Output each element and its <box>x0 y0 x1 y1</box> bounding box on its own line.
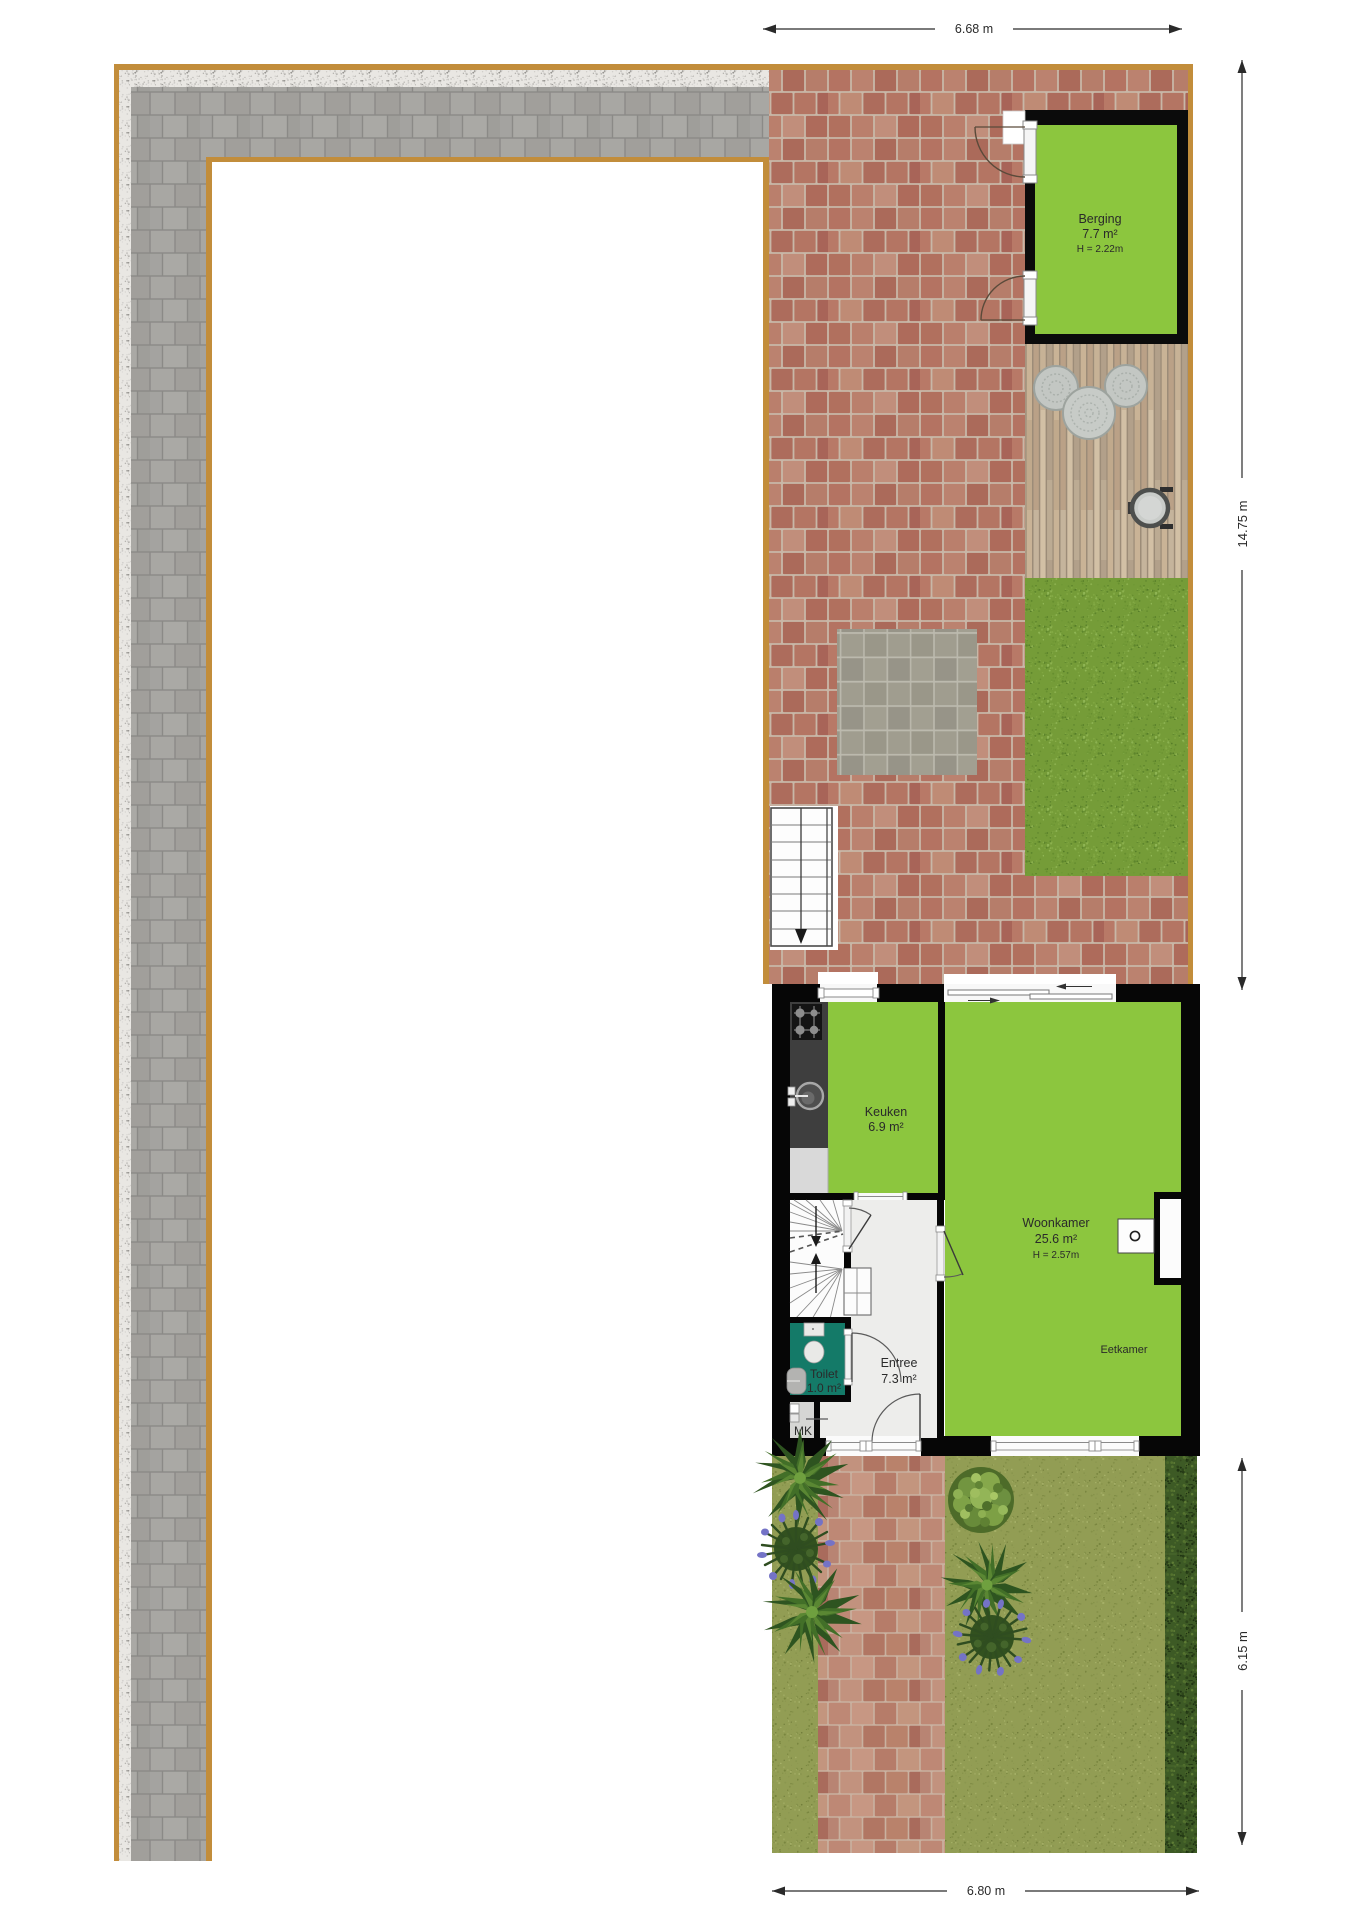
svg-text:25.6 m²: 25.6 m² <box>1035 1232 1077 1246</box>
svg-text:7.3 m²: 7.3 m² <box>881 1372 916 1386</box>
svg-text:Toilet: Toilet <box>810 1367 839 1381</box>
svg-text:Woonkamer: Woonkamer <box>1022 1216 1089 1230</box>
svg-text:6.68 m: 6.68 m <box>955 22 993 36</box>
svg-text:Eetkamer: Eetkamer <box>1100 1344 1147 1356</box>
svg-text:7.7 m²: 7.7 m² <box>1082 227 1117 241</box>
svg-text:14.75 m: 14.75 m <box>1235 501 1250 548</box>
svg-text:6.80 m: 6.80 m <box>967 1884 1005 1898</box>
svg-text:1.0 m²: 1.0 m² <box>807 1381 841 1395</box>
svg-text:Keuken: Keuken <box>865 1105 907 1119</box>
svg-text:6.9 m²: 6.9 m² <box>868 1120 903 1134</box>
svg-text:6.15 m: 6.15 m <box>1235 1631 1250 1671</box>
svg-text:Berging: Berging <box>1078 212 1121 226</box>
svg-text:H = 2.57m: H = 2.57m <box>1033 1250 1079 1261</box>
svg-text:H = 2.22m: H = 2.22m <box>1077 244 1123 255</box>
svg-text:MK: MK <box>794 1424 812 1438</box>
